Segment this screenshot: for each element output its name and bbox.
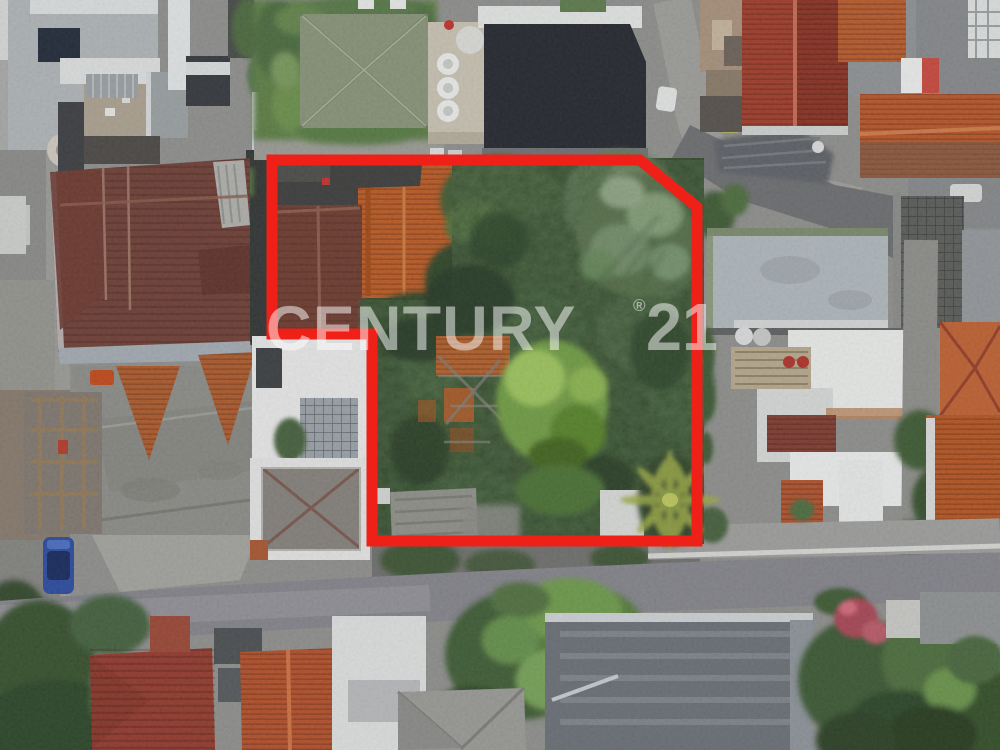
svg-text:21: 21: [646, 290, 718, 365]
svg-text:®: ®: [633, 296, 646, 315]
svg-text:CENTURY: CENTURY: [266, 294, 577, 364]
